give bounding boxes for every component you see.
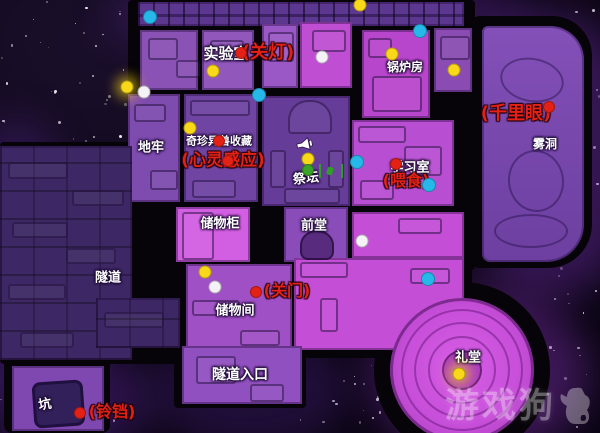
star — [58, 121, 61, 124]
furniture-sketch — [312, 30, 346, 52]
task-marker-dot — [222, 155, 234, 167]
star — [104, 103, 107, 106]
task-marker-dot — [199, 266, 212, 279]
furniture-sketch — [176, 60, 200, 78]
label-fog-cave: 雾洞 — [533, 138, 557, 150]
game-map-screenshot: 实验室 (关灯) 锅炉房 (千里眼) 雾洞 地牢 奇珍异兽收藏 (心灵感应) 祭… — [0, 0, 600, 433]
star — [79, 82, 81, 84]
label-storage: 储物间 — [215, 305, 254, 318]
tunnel-bench-sketch — [20, 332, 74, 348]
star — [575, 11, 578, 14]
tunnel-bench-sketch — [66, 248, 116, 264]
watermark: 游戏狗 — [445, 378, 592, 427]
task-marker-dot — [390, 158, 402, 170]
furniture-sketch — [320, 298, 338, 332]
furniture-sketch — [148, 38, 178, 60]
task-marker-dot — [350, 155, 364, 169]
tunnel-bench-sketch — [8, 162, 68, 179]
tunnel-bench-sketch — [72, 190, 124, 206]
star — [1, 57, 3, 59]
tunnel-bench-sketch — [12, 222, 68, 238]
star — [363, 383, 365, 385]
star — [54, 90, 57, 93]
star — [359, 421, 361, 423]
star — [85, 7, 87, 9]
task-marker-dot — [316, 51, 329, 64]
star — [73, 138, 75, 140]
furniture-sketch — [192, 180, 236, 198]
star — [568, 303, 569, 304]
furniture-sketch — [190, 100, 250, 116]
star — [354, 383, 356, 385]
task-marker-dot — [209, 281, 222, 294]
star — [6, 82, 9, 85]
star — [48, 47, 49, 48]
furniture-sketch — [440, 36, 470, 60]
label-clairvoyance: (千里眼) — [481, 105, 551, 123]
furniture-sketch — [134, 104, 166, 122]
altar-pillar-sketch — [270, 150, 286, 188]
task-marker-dot — [302, 164, 314, 176]
star — [583, 312, 584, 313]
star — [95, 45, 97, 47]
task-marker-dot — [386, 48, 399, 61]
star — [102, 34, 104, 36]
task-marker-dot — [543, 101, 555, 113]
task-marker-dot — [235, 47, 247, 59]
label-boiler: 锅炉房 — [387, 61, 423, 73]
star — [592, 9, 595, 12]
label-lab-ability: (关灯) — [242, 44, 294, 62]
front-hall-fixture — [300, 230, 334, 260]
task-marker-dot — [250, 286, 262, 298]
label-pit: 坑 — [37, 397, 52, 412]
star — [119, 135, 122, 138]
star — [595, 290, 597, 292]
task-marker-dot — [421, 272, 435, 286]
furniture-sketch — [358, 126, 406, 143]
star — [123, 69, 125, 71]
task-marker-dot — [184, 122, 197, 135]
label-bell: (铃铛) — [89, 404, 136, 420]
task-marker-dot — [207, 65, 220, 78]
star — [92, 75, 94, 77]
star — [33, 19, 34, 20]
task-marker-dot — [74, 407, 86, 419]
furniture-sketch — [372, 76, 422, 112]
tunnel-bench-sketch — [104, 312, 164, 328]
star — [25, 35, 27, 37]
task-marker-dot — [252, 88, 266, 102]
label-tunnel-entrance: 隧道入口 — [212, 368, 268, 382]
altar-arch-sketch — [288, 100, 332, 134]
fog-cave-sketch — [494, 214, 568, 248]
label-tunnel: 隧道 — [95, 272, 121, 285]
label-dungeon: 地牢 — [138, 142, 164, 155]
tunnel-bench-sketch — [8, 284, 66, 300]
task-marker-dot — [356, 235, 369, 248]
star — [106, 99, 108, 101]
star — [372, 417, 374, 419]
watermark-text: 游戏狗 — [445, 378, 556, 427]
furniture-sketch — [250, 384, 284, 402]
star — [11, 44, 13, 46]
furniture-sketch — [284, 188, 340, 204]
task-marker-dot — [213, 135, 225, 147]
task-marker-dot — [121, 81, 134, 94]
star — [46, 1, 48, 3]
dog-logo-icon — [558, 385, 592, 427]
task-marker-dot — [413, 24, 427, 38]
task-marker-dot — [422, 178, 436, 192]
star — [354, 376, 356, 378]
star — [51, 91, 52, 92]
leaf-icon — [326, 166, 334, 175]
star — [363, 410, 364, 411]
task-marker-dot — [448, 64, 461, 77]
furniture-sketch — [300, 262, 348, 278]
star — [83, 32, 85, 34]
label-front-hall: 前堂 — [301, 220, 327, 233]
star — [75, 23, 76, 24]
task-marker-dot — [143, 10, 157, 24]
label-locker: 储物柜 — [200, 218, 239, 231]
label-auditorium: 礼堂 — [455, 352, 481, 365]
furniture-sketch — [150, 170, 178, 190]
star — [124, 103, 127, 106]
task-marker-dot — [138, 86, 151, 99]
label-close-door: (关门) — [264, 283, 311, 299]
green-bracket-icon — [319, 164, 343, 178]
furniture-sketch — [398, 218, 442, 234]
star — [108, 95, 111, 98]
furniture-sketch — [240, 330, 280, 346]
star — [93, 136, 95, 138]
star — [40, 42, 41, 43]
